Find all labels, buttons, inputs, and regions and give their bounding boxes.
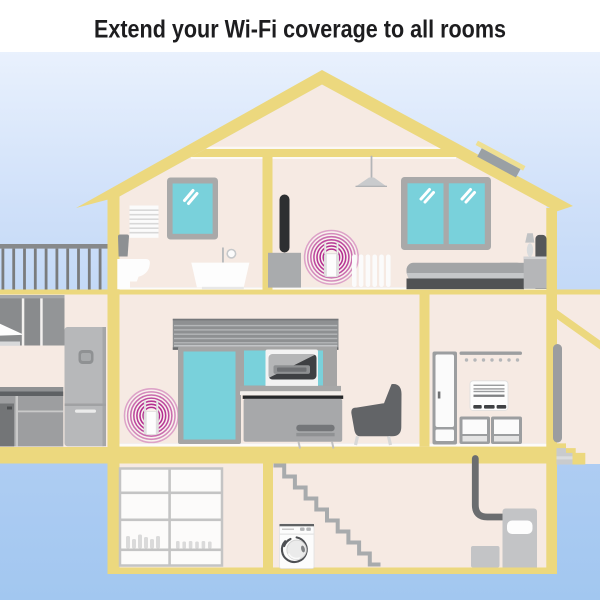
svg-text:Extend your Wi-Fi coverage to: Extend your Wi-Fi coverage to all rooms (94, 16, 506, 44)
